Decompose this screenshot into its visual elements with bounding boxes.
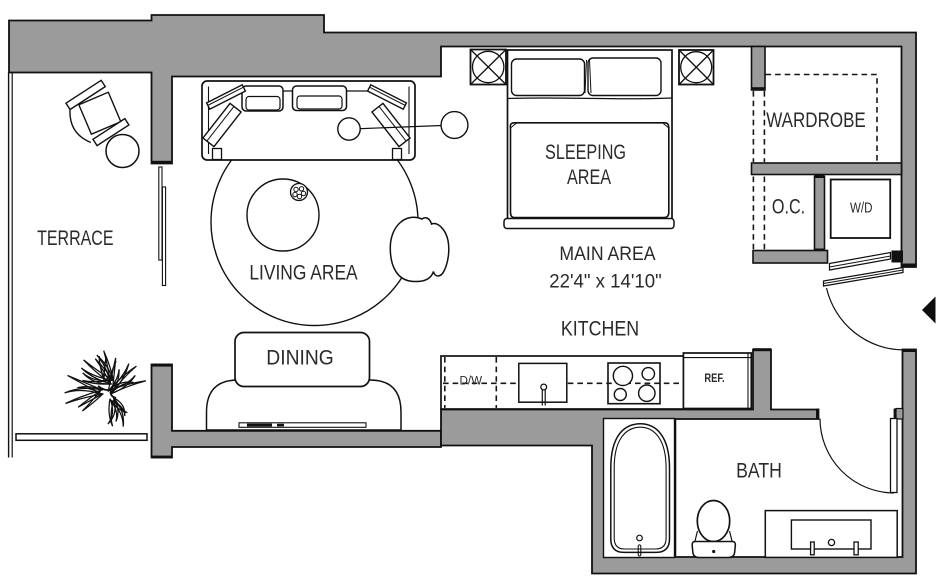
svg-text:BATH: BATH — [736, 459, 782, 483]
svg-text:O.C.: O.C. — [772, 195, 805, 219]
svg-text:AREA: AREA — [567, 166, 611, 190]
svg-text:MAIN AREA: MAIN AREA — [559, 242, 656, 264]
svg-text:WARDROBE: WARDROBE — [766, 108, 866, 132]
svg-text:SLEEPING: SLEEPING — [545, 141, 626, 165]
svg-text:KITCHEN: KITCHEN — [561, 317, 639, 341]
svg-text:W/D: W/D — [850, 199, 873, 216]
svg-text:DINING: DINING — [266, 347, 333, 370]
svg-text:REF.: REF. — [704, 372, 724, 385]
svg-text:TERRACE: TERRACE — [37, 227, 113, 251]
svg-text:LIVING AREA: LIVING AREA — [249, 261, 357, 285]
svg-text:22'4" x 14'10": 22'4" x 14'10" — [549, 270, 661, 291]
svg-text:D/W: D/W — [459, 373, 482, 387]
